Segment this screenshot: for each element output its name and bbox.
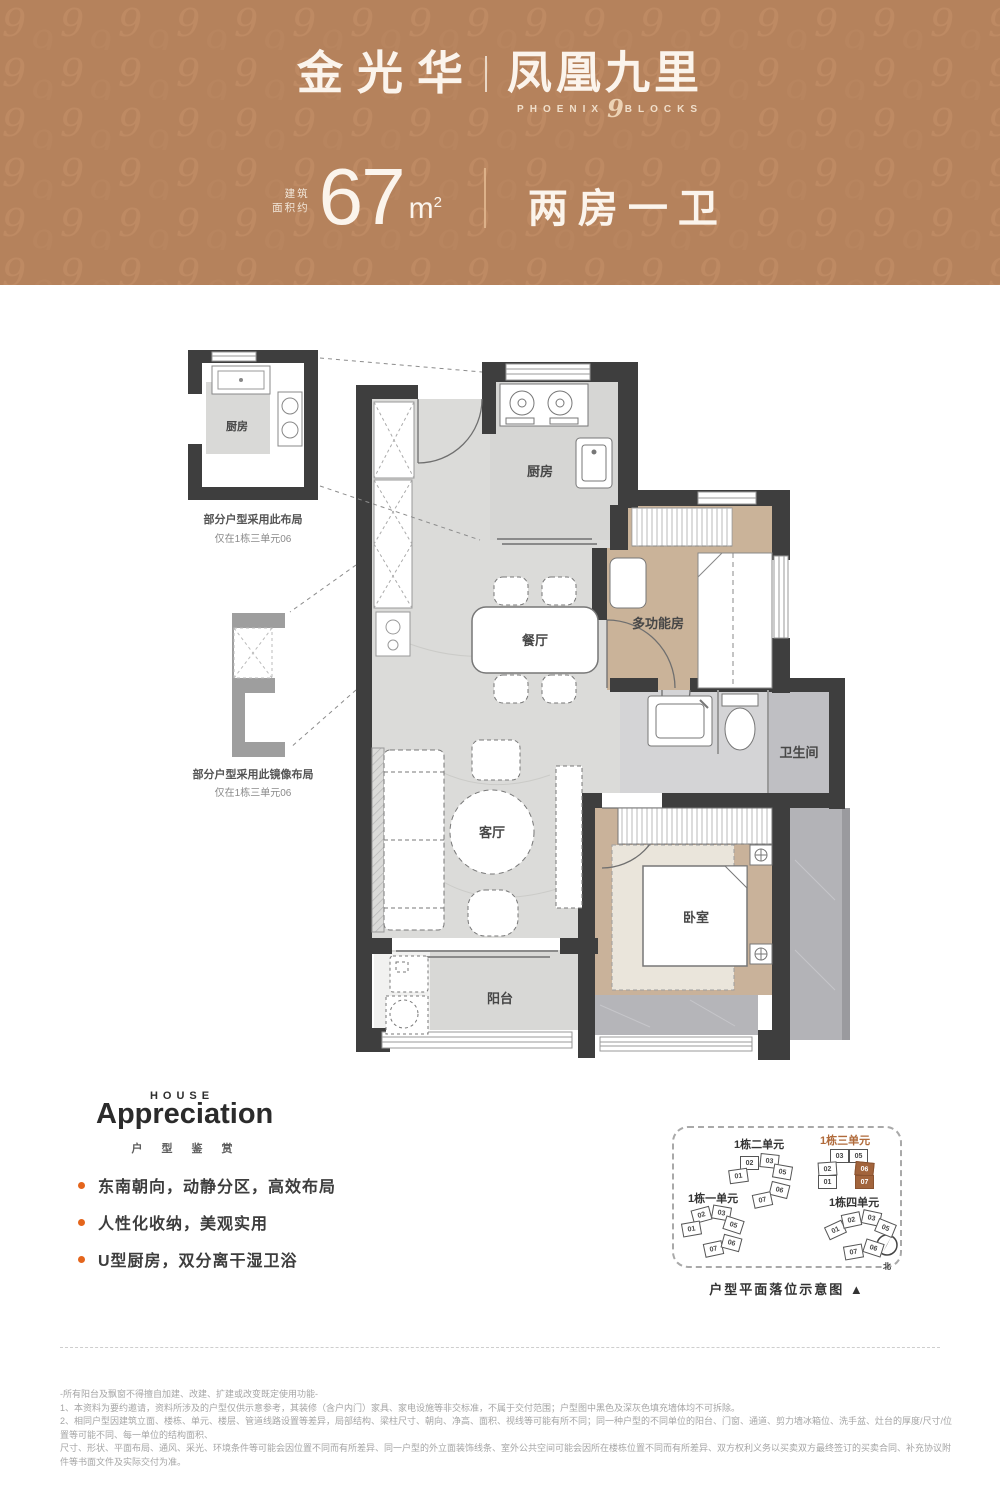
room-label-bedroom: 卧室 bbox=[683, 910, 709, 925]
brand-right-wrap: 凤凰九里 PHOENIX 9 BLOCKS bbox=[507, 48, 703, 115]
keyplan-unit: 01 bbox=[818, 1175, 837, 1189]
keyplan-unit: 07 bbox=[843, 1243, 864, 1260]
spec-divider bbox=[484, 168, 486, 228]
floor-shower bbox=[768, 690, 829, 793]
area-prefix: 建筑 面积约 bbox=[272, 187, 310, 234]
disclaimer-line: 1、本资料为要约邀请，资料所涉及的户型仅供示意参考，其装修（含户内门）家具、家电… bbox=[60, 1402, 954, 1416]
room-label-dining: 餐厅 bbox=[521, 633, 548, 648]
keyplan-unit: 06 bbox=[769, 1181, 791, 1199]
keyplan-cluster-label: 1栋四单元 bbox=[829, 1194, 879, 1210]
selling-point: U型厨房，双分离干湿卫浴 bbox=[78, 1251, 336, 1267]
layout-type: 两房一卫 bbox=[528, 176, 728, 234]
area-prefix-line2: 面积约 bbox=[272, 201, 310, 215]
room-label-bath: 卫生间 bbox=[779, 745, 818, 760]
entry-closets bbox=[374, 402, 414, 656]
area-prefix-line1: 建筑 bbox=[272, 187, 310, 201]
compass-north-label: 北 bbox=[874, 1262, 900, 1271]
selling-point: 东南朝向，动静分区，高效布局 bbox=[78, 1177, 336, 1193]
inset-kitchen-alt bbox=[188, 350, 318, 500]
ac-platform-marble bbox=[790, 808, 842, 1040]
brand-subtitle: PHOENIX 9 BLOCKS bbox=[507, 103, 703, 115]
appreciation-title: Appreciation bbox=[96, 1098, 268, 1131]
header-pattern: 9 9 bbox=[0, 0, 1000, 285]
brand-sub-left: PHOENIX bbox=[517, 104, 604, 115]
keyplan-unit: 01 bbox=[681, 1220, 702, 1237]
appreciation-block: HOUSE Appreciation 户型鉴赏 bbox=[96, 1090, 268, 1156]
room-label-inset-kitchen: 厨房 bbox=[226, 419, 248, 433]
keyplan-box: 南 北 1栋二单元0203010506071栋三单元0305020106071栋… bbox=[672, 1126, 902, 1268]
keyplan-unit: 07 bbox=[855, 1175, 874, 1189]
room-label-living: 客厅 bbox=[479, 825, 505, 840]
keyplan-caption: 户型平面落位示意图 ▲ bbox=[672, 1279, 902, 1298]
room-label-kitchen: 厨房 bbox=[527, 464, 553, 479]
area-unit-sup: 2 bbox=[434, 194, 442, 211]
selling-point-text: U型厨房，双分离干湿卫浴 bbox=[98, 1247, 298, 1271]
bullet-dot-icon bbox=[78, 1256, 85, 1263]
brand-divider bbox=[485, 56, 487, 92]
keyplan-unit: 06 bbox=[721, 1234, 743, 1252]
inset-top-note1: 部分户型采用此布局 bbox=[204, 512, 303, 526]
inset-bottom-note1: 部分户型采用此镜像布局 bbox=[193, 767, 314, 781]
bedroom-sill-marble bbox=[595, 995, 758, 1035]
selling-point: 人性化收纳，美观实用 bbox=[78, 1214, 336, 1230]
disclaimer-line: 2、相同户型因建筑立面、楼栋、单元、楼层、管道线路设置等差异，局部结构、梁柱尺寸… bbox=[60, 1415, 954, 1442]
selling-point-text: 人性化收纳，美观实用 bbox=[98, 1210, 268, 1234]
disclaimer-line: 尺寸、形状、平面布局、通风、采光、环境条件等可能会因位置不同而有所差异、同一户型… bbox=[60, 1442, 954, 1469]
keyplan-unit: 02 bbox=[841, 1211, 862, 1229]
keyplan-unit: 07 bbox=[752, 1191, 773, 1209]
inset-top-note2: 仅在1栋三单元06 bbox=[215, 532, 292, 545]
appreciation-subtitle: 户型鉴赏 bbox=[96, 1140, 287, 1156]
bullet-dot-icon bbox=[78, 1219, 85, 1226]
disclaimer: -所有阳台及飘窗不得擅自加建、改建、扩建或改变既定使用功能- 1、本资料为要约邀… bbox=[60, 1388, 954, 1469]
brand-row: 金光华 凤凰九里 PHOENIX 9 BLOCKS bbox=[0, 48, 1000, 115]
room-label-balcony: 阳台 bbox=[487, 991, 513, 1006]
floorplan-svg: 厨房 餐厅 多功能房 卫生间 客厅 卧室 阳台 厨房 部分户型采用此布局 仅在1… bbox=[0, 320, 1000, 1090]
footer-separator bbox=[60, 1347, 940, 1348]
keyplan-cluster-label: 1栋二单元 bbox=[734, 1136, 784, 1152]
keyplan-unit: 01 bbox=[728, 1168, 749, 1185]
brand-name-right: 凤凰九里 bbox=[507, 48, 703, 98]
keyplan-unit: 05 bbox=[722, 1215, 744, 1234]
ac-platform-edge bbox=[842, 808, 850, 1040]
brand-name-left: 金光华 bbox=[297, 48, 477, 115]
brand-sub-right: BLOCKS bbox=[625, 104, 703, 115]
keyplan-cluster-label: 1栋三单元 bbox=[820, 1132, 870, 1148]
brand-sub-numeral: 9 bbox=[607, 103, 624, 115]
area-value: 67 bbox=[319, 160, 404, 234]
area-unit: m2 bbox=[409, 192, 442, 234]
header-banner: 9 9 金光华 凤凰九里 PHOENIX 9 BLOCKS 建筑 面积约 bbox=[0, 0, 1000, 285]
keyplan-unit: 05 bbox=[772, 1163, 793, 1180]
inset-mirror-layout bbox=[232, 613, 285, 757]
poster-page: 9 9 金光华 凤凰九里 PHOENIX 9 BLOCKS 建筑 面积约 bbox=[0, 0, 1000, 1500]
bath-fixtures bbox=[648, 694, 758, 750]
room-label-multi: 多功能房 bbox=[632, 616, 684, 631]
selling-point-text: 东南朝向，动静分区，高效布局 bbox=[98, 1173, 336, 1197]
selling-points-list: 东南朝向，动静分区，高效布局 人性化收纳，美观实用 U型厨房，双分离干湿卫浴 bbox=[78, 1177, 336, 1288]
bullet-dot-icon bbox=[78, 1182, 85, 1189]
disclaimer-line: -所有阳台及飘窗不得擅自加建、改建、扩建或改变既定使用功能- bbox=[60, 1388, 954, 1402]
spec-row: 建筑 面积约 67 m2 两房一卫 bbox=[0, 160, 1000, 234]
inset-bottom-note2: 仅在1栋三单元06 bbox=[215, 786, 292, 799]
area-unit-m: m bbox=[409, 192, 434, 225]
